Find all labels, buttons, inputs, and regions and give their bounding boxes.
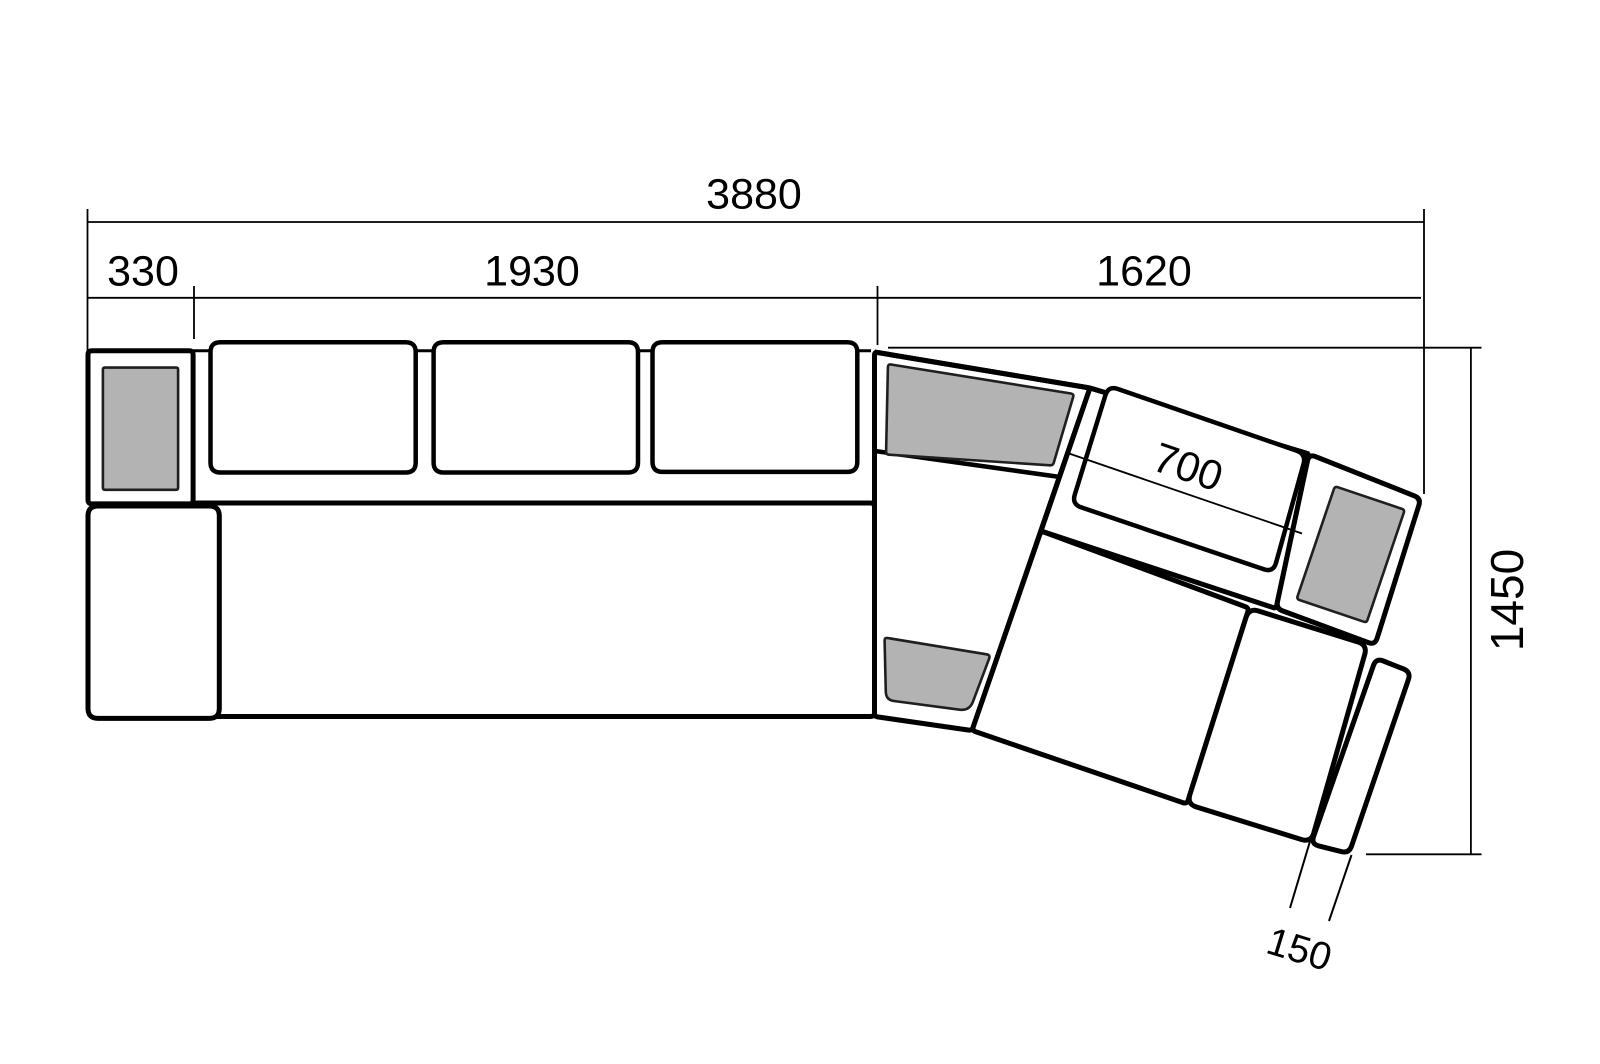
svg-text:1450: 1450 <box>1481 549 1533 651</box>
svg-text:150: 150 <box>1262 920 1337 980</box>
svg-text:3880: 3880 <box>706 170 802 218</box>
svg-text:1930: 1930 <box>484 247 580 295</box>
svg-text:330: 330 <box>107 247 179 295</box>
svg-text:1620: 1620 <box>1096 247 1192 295</box>
